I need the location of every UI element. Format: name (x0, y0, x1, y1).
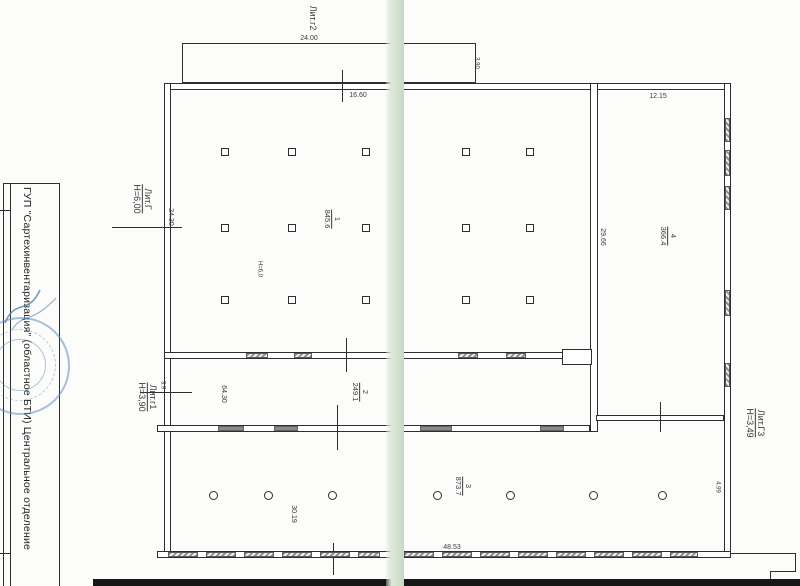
column-square (462, 224, 470, 232)
column-square (288, 148, 296, 156)
column-circle (264, 491, 273, 500)
dim-left-height: 24.30 (166, 208, 174, 226)
dim-top-offset: 16.60 (349, 92, 367, 100)
dim-tick (337, 405, 338, 450)
window-segment (404, 552, 434, 557)
lit-g1-height: Н=3,90 (136, 382, 146, 411)
room-2-number: 2 (360, 383, 370, 402)
column-circle (589, 491, 598, 500)
lit-g-text: Лит.Г (142, 184, 153, 213)
dim-tick (333, 543, 334, 575)
window-segment (206, 552, 236, 557)
room-label-4: 4 366.4 (659, 227, 677, 246)
dim-annex-width: 24.00 (300, 35, 318, 43)
window-segment (518, 552, 548, 557)
window-segment (594, 552, 624, 557)
dim-g3-side-height: 29.66 (598, 228, 606, 246)
window-segment (725, 186, 730, 210)
form-border-line (3, 183, 59, 184)
column-square (362, 224, 370, 232)
dim-room3: 30.19 (289, 505, 297, 523)
room-1-area: 845.6 (323, 210, 332, 229)
column-square (221, 224, 229, 232)
annex-g2-outline (182, 43, 476, 83)
window-segment (168, 552, 198, 557)
room-4-area: 366.4 (659, 227, 668, 246)
building-label-lit-g1: Лит.г1 Н=3,90 (136, 382, 158, 411)
column-circle (328, 491, 337, 500)
window-segment (320, 552, 350, 557)
form-divider-line (0, 553, 10, 554)
column-square (362, 148, 370, 156)
window-segment (358, 552, 380, 557)
dim-annex-depth: 3.90 (473, 57, 480, 69)
door-segment (274, 426, 298, 431)
building-label-lit-g: Лит.Г Н=6,00 (131, 184, 153, 213)
wall-pier (562, 349, 592, 365)
column-square (526, 148, 534, 156)
room-label-2: 2 249.1 (351, 383, 369, 402)
dim-corridor-length: 64.30 (219, 385, 227, 403)
page-fold-crease (386, 0, 404, 586)
lit-g3-text: Лит.Г3 (755, 408, 766, 437)
room-3-number: 3 (463, 477, 473, 496)
signature-scribble (0, 278, 70, 338)
column-square (221, 148, 229, 156)
column-square (462, 296, 470, 304)
form-divider-line (0, 210, 10, 211)
column-circle (506, 491, 515, 500)
window-segment (294, 353, 312, 358)
room-4-number: 4 (668, 227, 678, 246)
door-segment (218, 426, 244, 431)
window-segment (725, 363, 730, 387)
window-segment (556, 552, 586, 557)
column-square (288, 224, 296, 232)
window-segment (725, 290, 730, 316)
boundary-line (770, 571, 795, 572)
lit-g2-text: Лит.г2 (308, 6, 318, 31)
window-segment (506, 353, 526, 358)
window-segment (725, 118, 730, 142)
dim-tick (660, 402, 661, 432)
scanned-plan-page: ГУП "Сартехинвентаризация" (областное БТ… (0, 0, 800, 586)
boundary-line (731, 553, 795, 554)
window-segment (480, 552, 510, 557)
building-label-lit-g3: Лит.Г3 Н=3,49 (744, 408, 766, 437)
window-segment (282, 552, 312, 557)
room-1-number: 1 (332, 210, 342, 229)
window-segment (632, 552, 662, 557)
window-segment (670, 552, 698, 557)
column-circle (433, 491, 442, 500)
column-square (288, 296, 296, 304)
dim-bottom-length: 48.53 (443, 544, 461, 552)
dim-corridor-left: 3.9 (159, 381, 166, 389)
window-segment (244, 552, 274, 557)
column-square (221, 296, 229, 304)
dim-g3-width: 12.15 (649, 93, 667, 101)
door-segment (420, 426, 452, 431)
lit-g1-text: Лит.г1 (147, 382, 158, 411)
room-2-area: 249.1 (351, 383, 360, 402)
room-label-1: 1 845.6 (323, 210, 341, 229)
wall-left (164, 83, 171, 558)
dim-tick (112, 227, 182, 228)
column-circle (209, 491, 218, 500)
column-square (362, 296, 370, 304)
lit-g-height: Н=6,00 (131, 184, 141, 213)
boundary-line (795, 553, 796, 572)
window-segment (442, 552, 472, 557)
door-segment (540, 426, 564, 431)
column-square (526, 296, 534, 304)
column-square (462, 148, 470, 156)
wall-corridor-top (164, 352, 590, 359)
column-circle (658, 491, 667, 500)
window-segment (246, 353, 268, 358)
scan-bottom-bar (93, 579, 800, 586)
building-label-lit-g2: Лит.г2 (308, 6, 318, 31)
column-square (526, 224, 534, 232)
room-label-3: 3 873.7 (454, 477, 472, 496)
room-3-area: 873.7 (454, 477, 463, 496)
dim-tick (346, 338, 347, 372)
dim-tick (342, 70, 343, 102)
wall-middle-vertical (590, 83, 598, 432)
window-segment (725, 150, 730, 176)
wall-top (164, 83, 731, 90)
dim-g3-lower-side: 4.99 (714, 481, 721, 493)
lit-g3-height: Н=3,49 (744, 408, 754, 437)
room-1-note: Н=6,0 (256, 261, 263, 277)
window-segment (458, 353, 478, 358)
